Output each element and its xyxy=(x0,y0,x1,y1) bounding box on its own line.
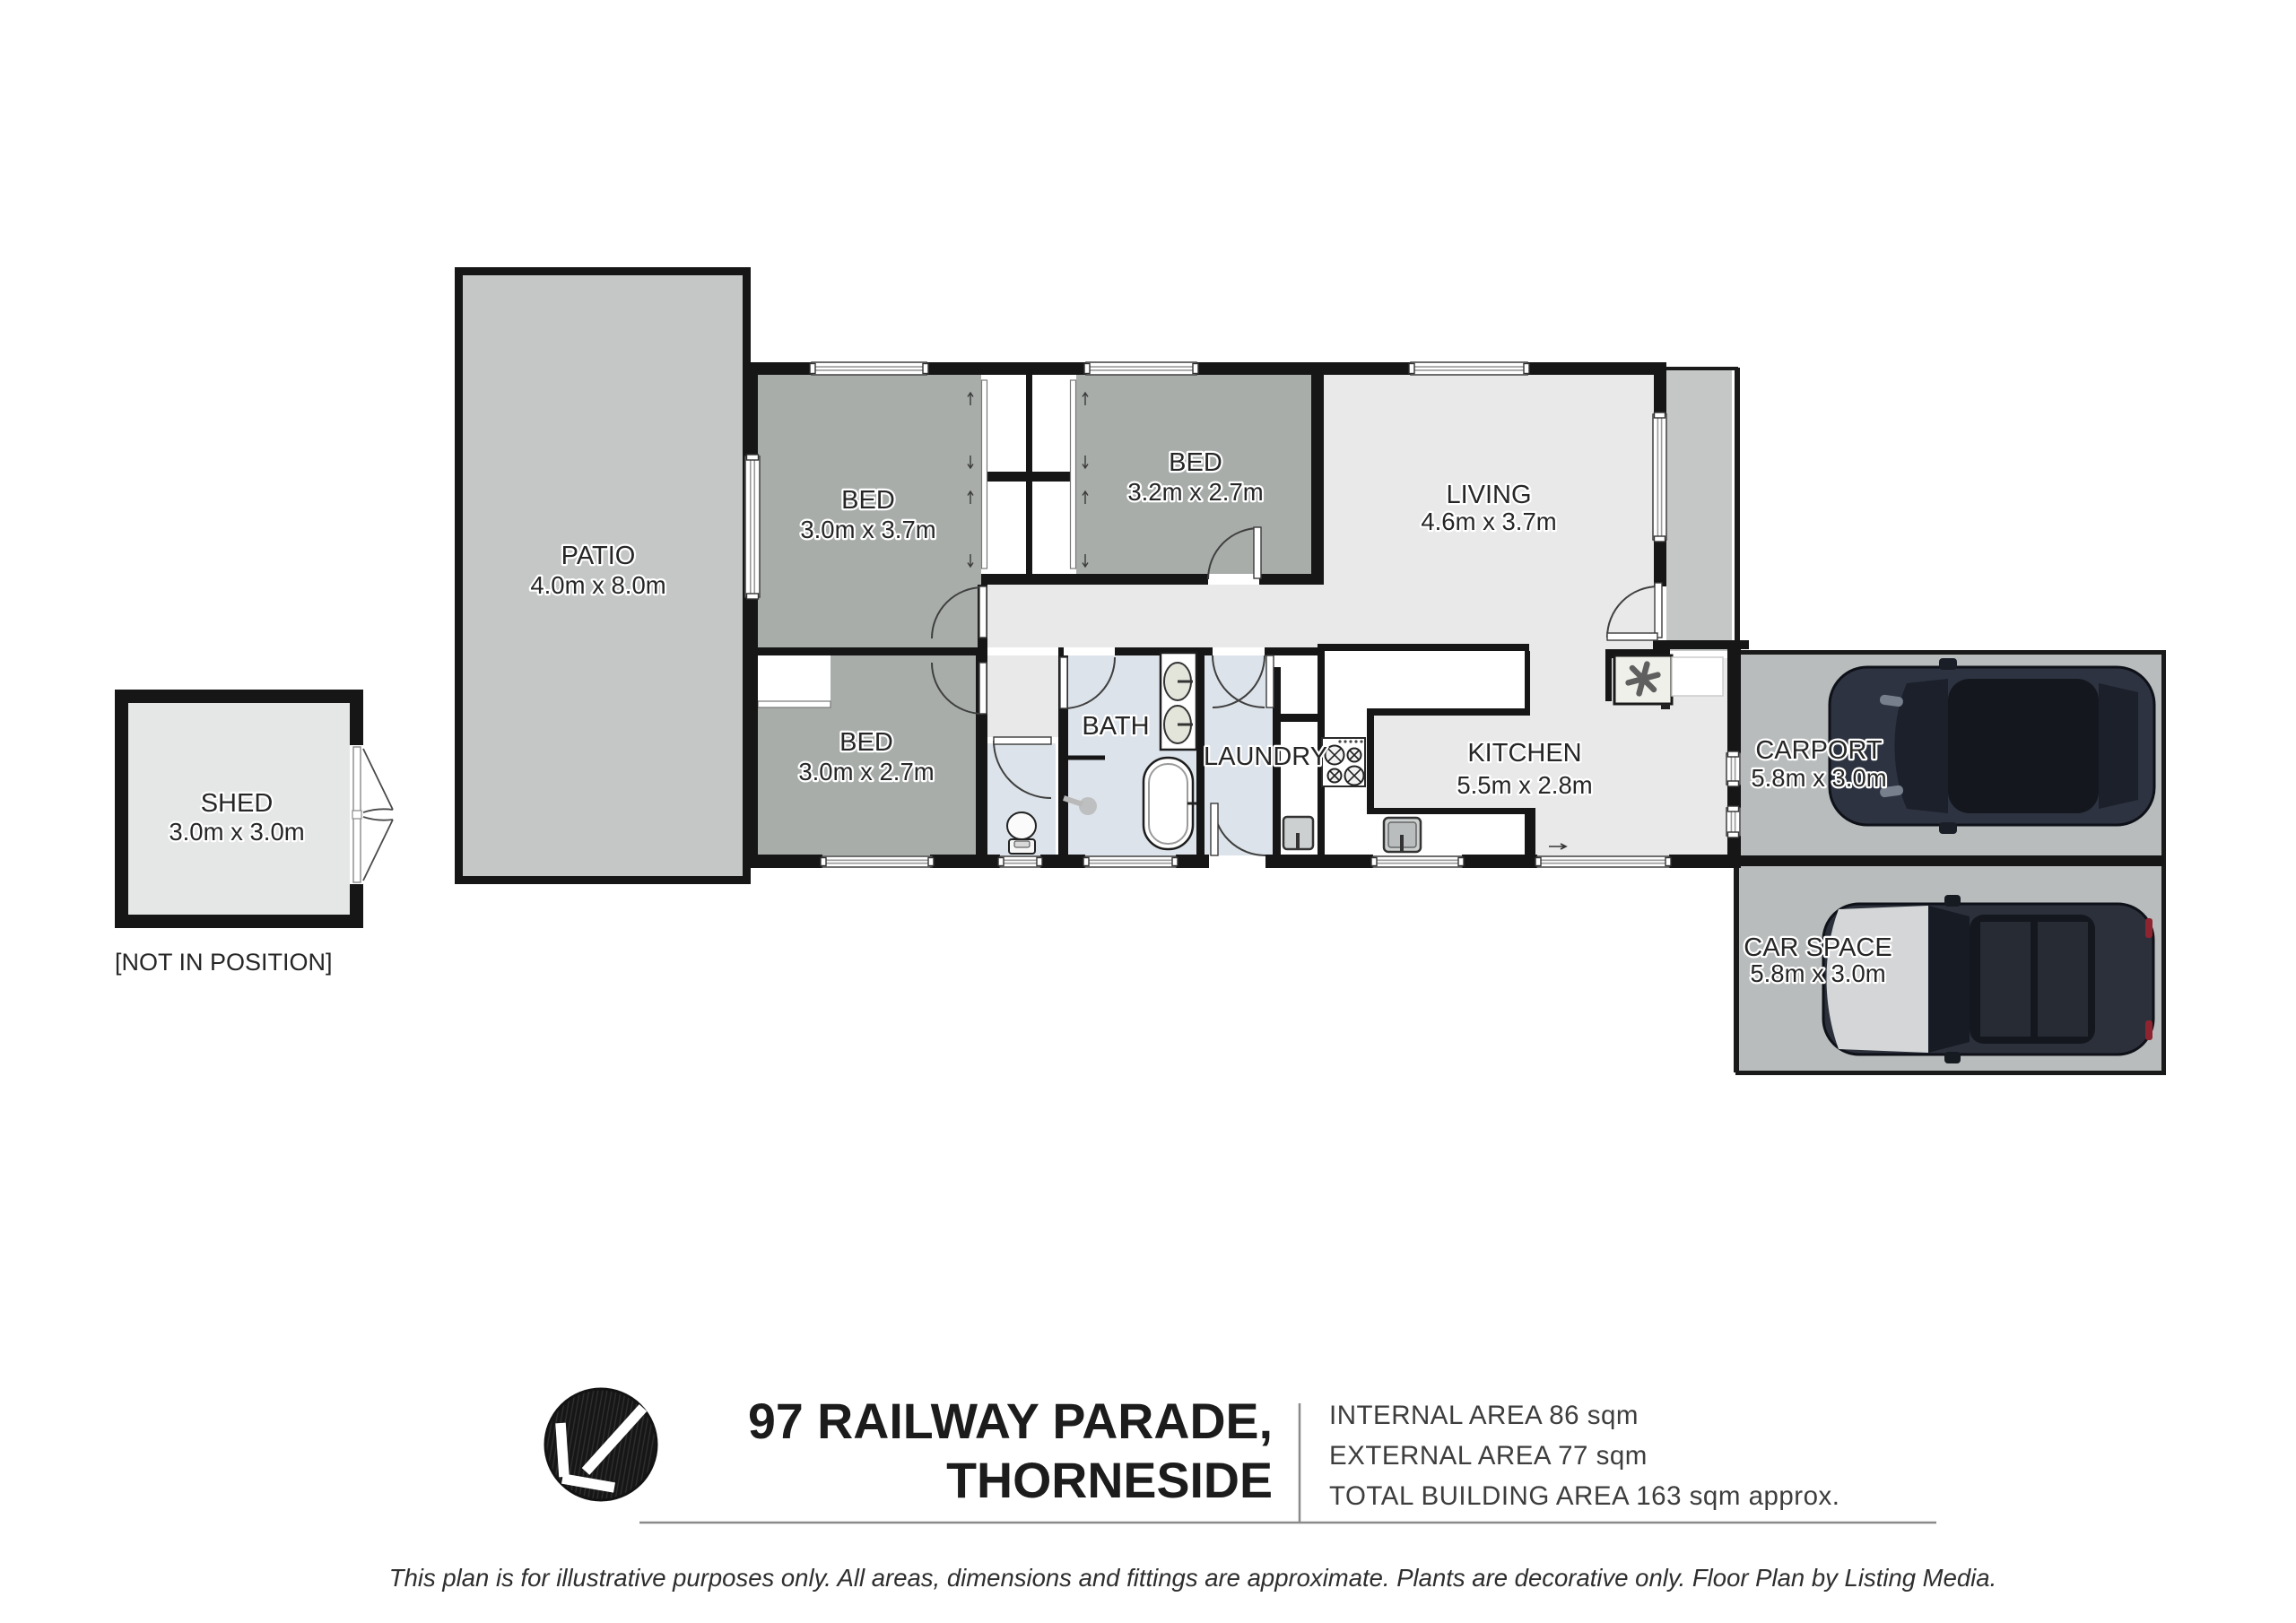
svg-text:BED: BED xyxy=(1169,448,1222,477)
svg-text:SHED: SHED xyxy=(201,789,274,818)
svg-text:PATIO: PATIO xyxy=(561,542,636,570)
svg-text:5.5m x 2.8m: 5.5m x 2.8m xyxy=(1457,771,1592,799)
svg-text:THORNESIDE: THORNESIDE xyxy=(946,1453,1273,1508)
svg-text:This plan is for illustrative: This plan is for illustrative purposes o… xyxy=(389,1564,1996,1592)
svg-text:BATH: BATH xyxy=(1082,712,1149,741)
svg-text:3.0m x 2.7m: 3.0m x 2.7m xyxy=(798,758,934,785)
svg-text:4.6m x 3.7m: 4.6m x 3.7m xyxy=(1421,508,1556,535)
svg-text:3.0m x 3.7m: 3.0m x 3.7m xyxy=(800,516,935,543)
svg-text:4.0m x 8.0m: 4.0m x 8.0m xyxy=(530,571,665,599)
svg-text:[NOT IN POSITION]: [NOT IN POSITION] xyxy=(115,949,333,976)
svg-text:LIVING: LIVING xyxy=(1446,481,1531,509)
svg-text:3.0m x 3.0m: 3.0m x 3.0m xyxy=(169,818,304,846)
svg-text:5.8m x 3.0m: 5.8m x 3.0m xyxy=(1751,764,1886,792)
svg-text:EXTERNAL AREA 77 sqm: EXTERNAL AREA 77 sqm xyxy=(1329,1441,1648,1471)
svg-text:KITCHEN: KITCHEN xyxy=(1467,739,1581,768)
svg-text:3.2m x 2.7m: 3.2m x 2.7m xyxy=(1127,478,1263,506)
svg-text:97 RAILWAY PARADE,: 97 RAILWAY PARADE, xyxy=(748,1393,1273,1449)
svg-text:BED: BED xyxy=(839,728,893,757)
svg-text:CARPORT: CARPORT xyxy=(1755,736,1883,765)
svg-text:5.8m x 3.0m: 5.8m x 3.0m xyxy=(1750,959,1885,987)
svg-text:TOTAL BUILDING AREA 163 sqm ap: TOTAL BUILDING AREA 163 sqm approx. xyxy=(1329,1481,1840,1511)
svg-text:BED: BED xyxy=(841,486,895,515)
svg-text:INTERNAL AREA 86 sqm: INTERNAL AREA 86 sqm xyxy=(1329,1401,1639,1430)
svg-text:LAUNDRY: LAUNDRY xyxy=(1204,742,1327,771)
svg-text:CAR SPACE: CAR SPACE xyxy=(1744,933,1892,962)
